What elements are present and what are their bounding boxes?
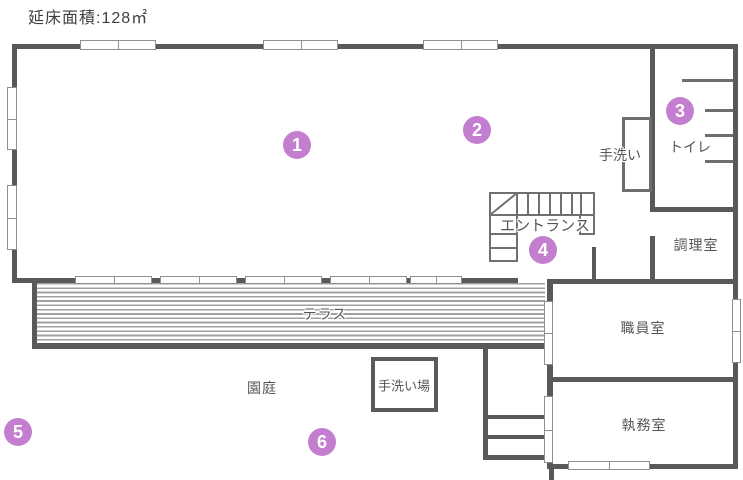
window-left-2 xyxy=(7,185,17,250)
toilet-stall-line-3 xyxy=(705,160,733,163)
terrace-decking xyxy=(37,283,545,343)
window-top-3 xyxy=(423,40,498,50)
wall-toilet-bottom xyxy=(650,207,738,212)
floor-plan: 延床面積:128㎡ xyxy=(0,0,743,480)
toilet-label: トイレ xyxy=(669,137,711,157)
entrance-label: エントランス xyxy=(500,215,590,236)
kitchen-label: 調理室 xyxy=(674,235,719,255)
staff-room-label: 職員室 xyxy=(621,318,666,338)
marker-1: 1 xyxy=(283,131,311,159)
terrace-label: テラス xyxy=(303,304,348,324)
wall-right xyxy=(733,44,738,469)
toilet-stall-line-1 xyxy=(705,109,733,112)
window-terrace-3 xyxy=(245,276,322,284)
step-line-1 xyxy=(487,415,547,419)
window-terrace-5 xyxy=(410,276,462,284)
wall-steps-bottom xyxy=(483,455,547,460)
wall-terrace-bottom xyxy=(32,343,548,349)
marker-4: 4 xyxy=(529,236,557,264)
window-office-bottom xyxy=(568,461,650,470)
window-top-2 xyxy=(263,40,338,50)
step-line-2 xyxy=(487,435,547,439)
toilet-stall-line-long xyxy=(682,79,733,82)
total-floor-area-label: 延床面積:128㎡ xyxy=(28,4,148,28)
wall-kitchen-left xyxy=(650,236,655,284)
marker-3: 3 xyxy=(666,97,694,125)
marker-5: 5 xyxy=(4,418,32,446)
window-terrace-1 xyxy=(75,276,152,284)
window-terrace-2 xyxy=(160,276,237,284)
office-label: 執務室 xyxy=(622,415,667,435)
window-terrace-4 xyxy=(330,276,407,284)
marker-6: 6 xyxy=(308,428,336,456)
hand-wash-station-label: 手洗い場 xyxy=(378,376,430,395)
wall-office-stub xyxy=(549,469,554,480)
yard-label: 園庭 xyxy=(247,378,277,398)
window-left-1 xyxy=(7,87,17,150)
window-staffroom-right xyxy=(732,299,741,363)
window-staffroom-left xyxy=(544,301,553,365)
hand-wash-label: 手洗い xyxy=(599,145,641,165)
wall-steps-left xyxy=(483,349,488,459)
wall-staff-office-divider xyxy=(547,377,738,382)
wall-staffroom-top xyxy=(547,279,738,284)
window-top-1 xyxy=(80,40,156,50)
marker-2: 2 xyxy=(463,116,491,144)
window-office-left xyxy=(544,396,553,463)
